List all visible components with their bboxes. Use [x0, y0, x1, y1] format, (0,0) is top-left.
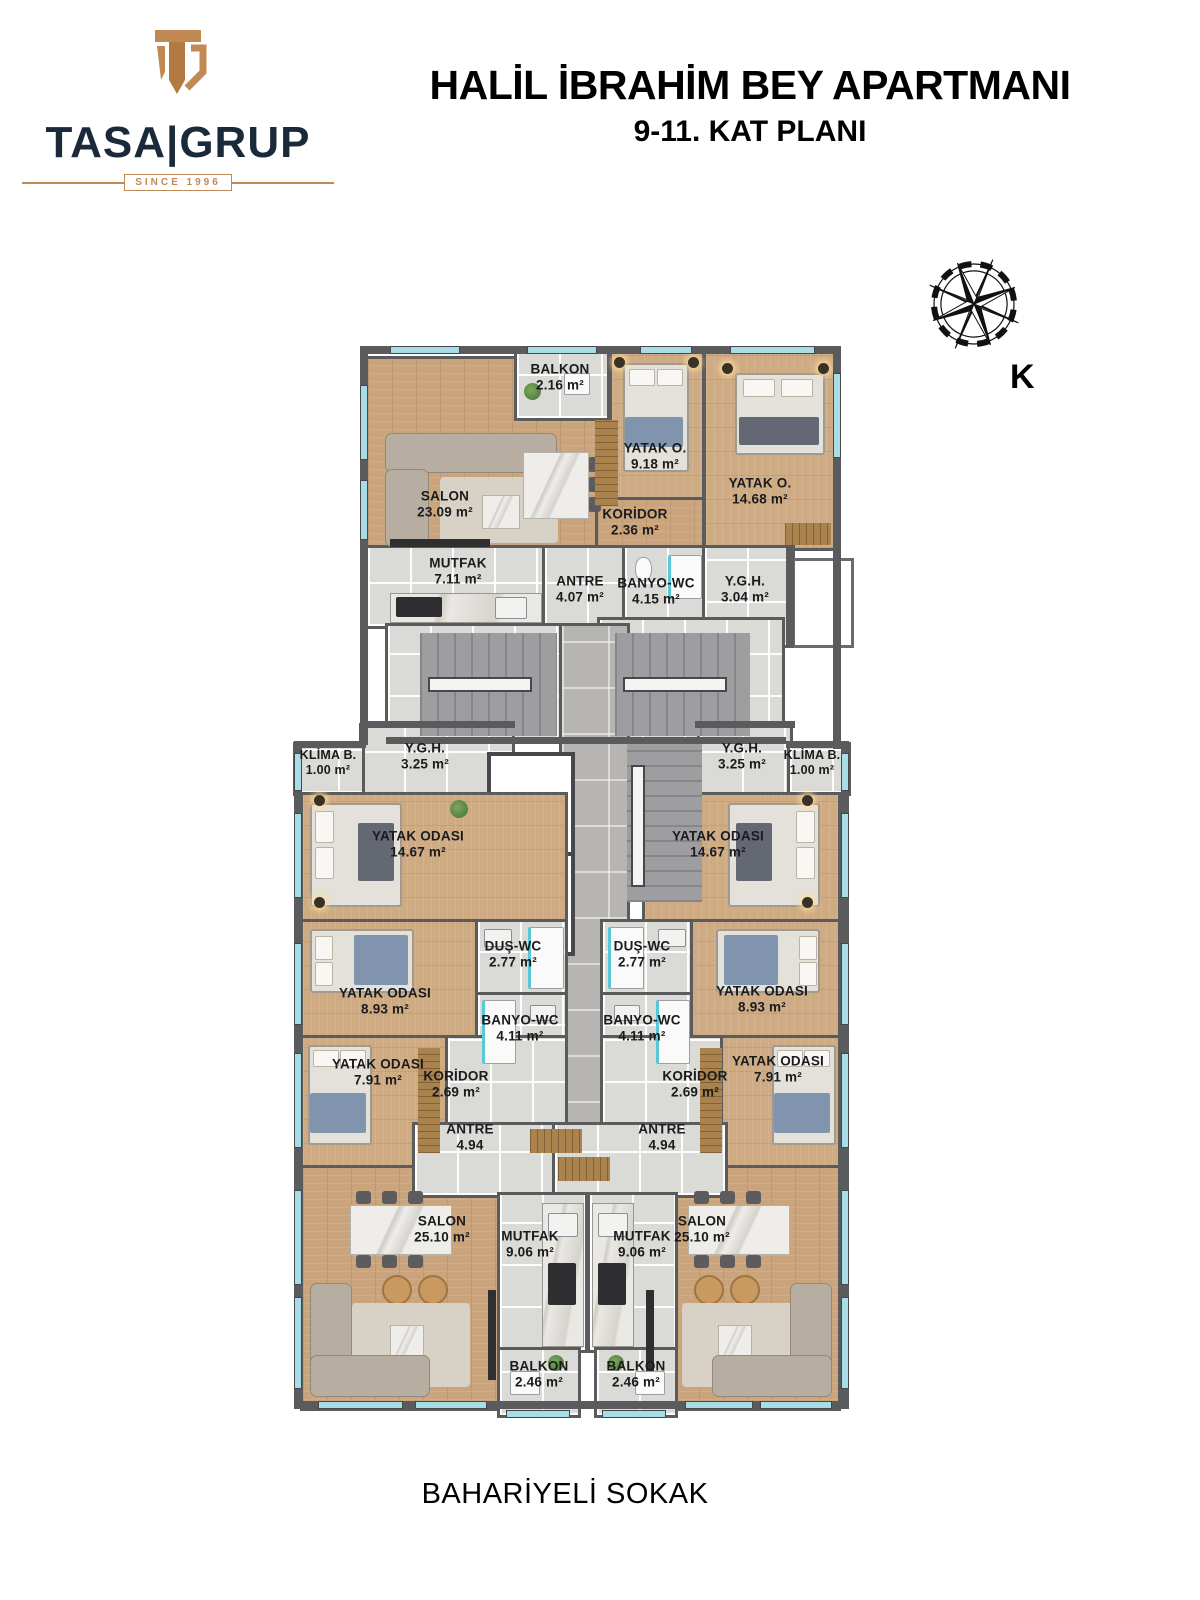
room-label-balkon-top: BALKON2.16 m² — [531, 362, 590, 395]
logo-since-badge: SINCE 1996 — [124, 174, 232, 191]
room-label-mutfak-711: MUTFAK7.11 m² — [429, 556, 486, 589]
room-label-banyo-411-right: BANYO-WC4.11 m² — [603, 1013, 680, 1046]
floor-plan-poster: { "header": { "logo_text": "TASA|GRUP", … — [0, 0, 1200, 1600]
compass-north-label: K — [1010, 358, 1035, 397]
room-label-salon-left: SALON25.10 m² — [414, 1214, 470, 1247]
stove — [396, 597, 442, 617]
room-label-klima-left: KLİMA B.1.00 m² — [300, 748, 357, 779]
armchair — [382, 1275, 412, 1305]
stairs-left-rail — [428, 677, 532, 692]
armchair — [418, 1275, 448, 1305]
hall-cabinet — [558, 1157, 610, 1181]
room-label-yatak-1467-right: YATAK ODASI14.67 m² — [672, 829, 764, 862]
coffee-table — [718, 1325, 752, 1357]
light-shaft — [792, 558, 854, 648]
coffee-table — [482, 495, 520, 529]
room-label-koridor-236: KORİDOR2.36 m² — [602, 507, 667, 540]
room-label-balkon-left: BALKON2.46 m² — [510, 1359, 569, 1392]
plant — [450, 800, 468, 818]
room-label-yatak-918: YATAK O.9.18 m² — [624, 441, 687, 474]
dining-table — [523, 452, 589, 519]
room-label-salon-top: SALON23.09 m² — [417, 489, 473, 522]
sofa — [712, 1355, 832, 1397]
room-label-antre-407: ANTRE4.07 m² — [556, 574, 604, 607]
title-block: HALİL İBRAHİM BEY APARTMANI 9-11. KAT PL… — [370, 62, 1130, 149]
wardrobe — [785, 523, 831, 545]
page-title: HALİL İBRAHİM BEY APARTMANI — [370, 62, 1130, 109]
room-label-yatak-1468: YATAK O.14.68 m² — [729, 476, 792, 509]
page-subtitle: 9-11. KAT PLANI — [370, 115, 1130, 149]
hall-cabinet — [530, 1129, 582, 1153]
bed — [310, 929, 414, 993]
room-label-yatak-893-right: YATAK ODASI8.93 m² — [716, 984, 808, 1017]
room-label-klima-right: KLİMA B.1.00 m² — [784, 748, 841, 779]
bed — [735, 373, 825, 455]
armchair — [694, 1275, 724, 1305]
room-label-antre-right: ANTRE4.94 — [638, 1122, 686, 1155]
stairs-core-rail — [631, 765, 645, 887]
room-label-yatak-791-right: YATAK ODASI7.91 m² — [732, 1054, 824, 1087]
room-label-koridor-269-right: KORİDOR2.69 m² — [662, 1069, 727, 1102]
room-label-koridor-269-left: KORİDOR2.69 m² — [423, 1069, 488, 1102]
stove — [598, 1263, 626, 1305]
street-label: BAHARİYELİ SOKAK — [422, 1478, 709, 1511]
kitchen-sink — [495, 597, 527, 619]
logo-wordmark: TASA|GRUP — [22, 118, 334, 168]
room-label-mutfak-left: MUTFAK9.06 m² — [501, 1229, 558, 1262]
room-label-ygh-right: Y.G.H.3.25 m² — [718, 741, 766, 774]
armchair — [730, 1275, 760, 1305]
coffee-table — [390, 1325, 424, 1357]
room-label-mutfak-right: MUTFAK9.06 m² — [613, 1229, 670, 1262]
logo-since-row: SINCE 1996 — [22, 174, 334, 191]
logo-emblem-icon — [135, 26, 221, 118]
sofa — [310, 1355, 430, 1397]
room-label-dus-left: DUŞ-WC2.77 m² — [485, 939, 542, 972]
compass-rose-icon — [922, 252, 1026, 356]
room-label-yatak-1467-left: YATAK ODASI14.67 m² — [372, 829, 464, 862]
stove — [548, 1263, 576, 1305]
room-label-banyo-415: BANYO-WC4.15 m² — [617, 576, 694, 609]
room-label-salon-right: SALON25.10 m² — [674, 1214, 730, 1247]
wardrobe — [595, 420, 618, 506]
room-label-banyo-411-left: BANYO-WC4.11 m² — [481, 1013, 558, 1046]
stairs-right-rail — [623, 677, 727, 692]
tv-unit — [390, 539, 490, 547]
room-label-yatak-791-left: YATAK ODASI7.91 m² — [332, 1057, 424, 1090]
tv-unit — [488, 1290, 496, 1380]
room-label-yatak-893-left: YATAK ODASI8.93 m² — [339, 986, 431, 1019]
room-label-ygh-304: Y.G.H.3.04 m² — [721, 574, 769, 607]
company-logo: TASA|GRUP SINCE 1996 — [22, 26, 334, 191]
room-label-dus-right: DUŞ-WC2.77 m² — [614, 939, 671, 972]
room-label-antre-left: ANTRE4.94 — [446, 1122, 494, 1155]
room-label-balkon-right: BALKON2.46 m² — [607, 1359, 666, 1392]
floor-plan: BALKON2.16 m² SALON23.09 m² YATAK O.9.18… — [290, 345, 856, 1421]
room-label-ygh-left: Y.G.H.3.25 m² — [401, 741, 449, 774]
